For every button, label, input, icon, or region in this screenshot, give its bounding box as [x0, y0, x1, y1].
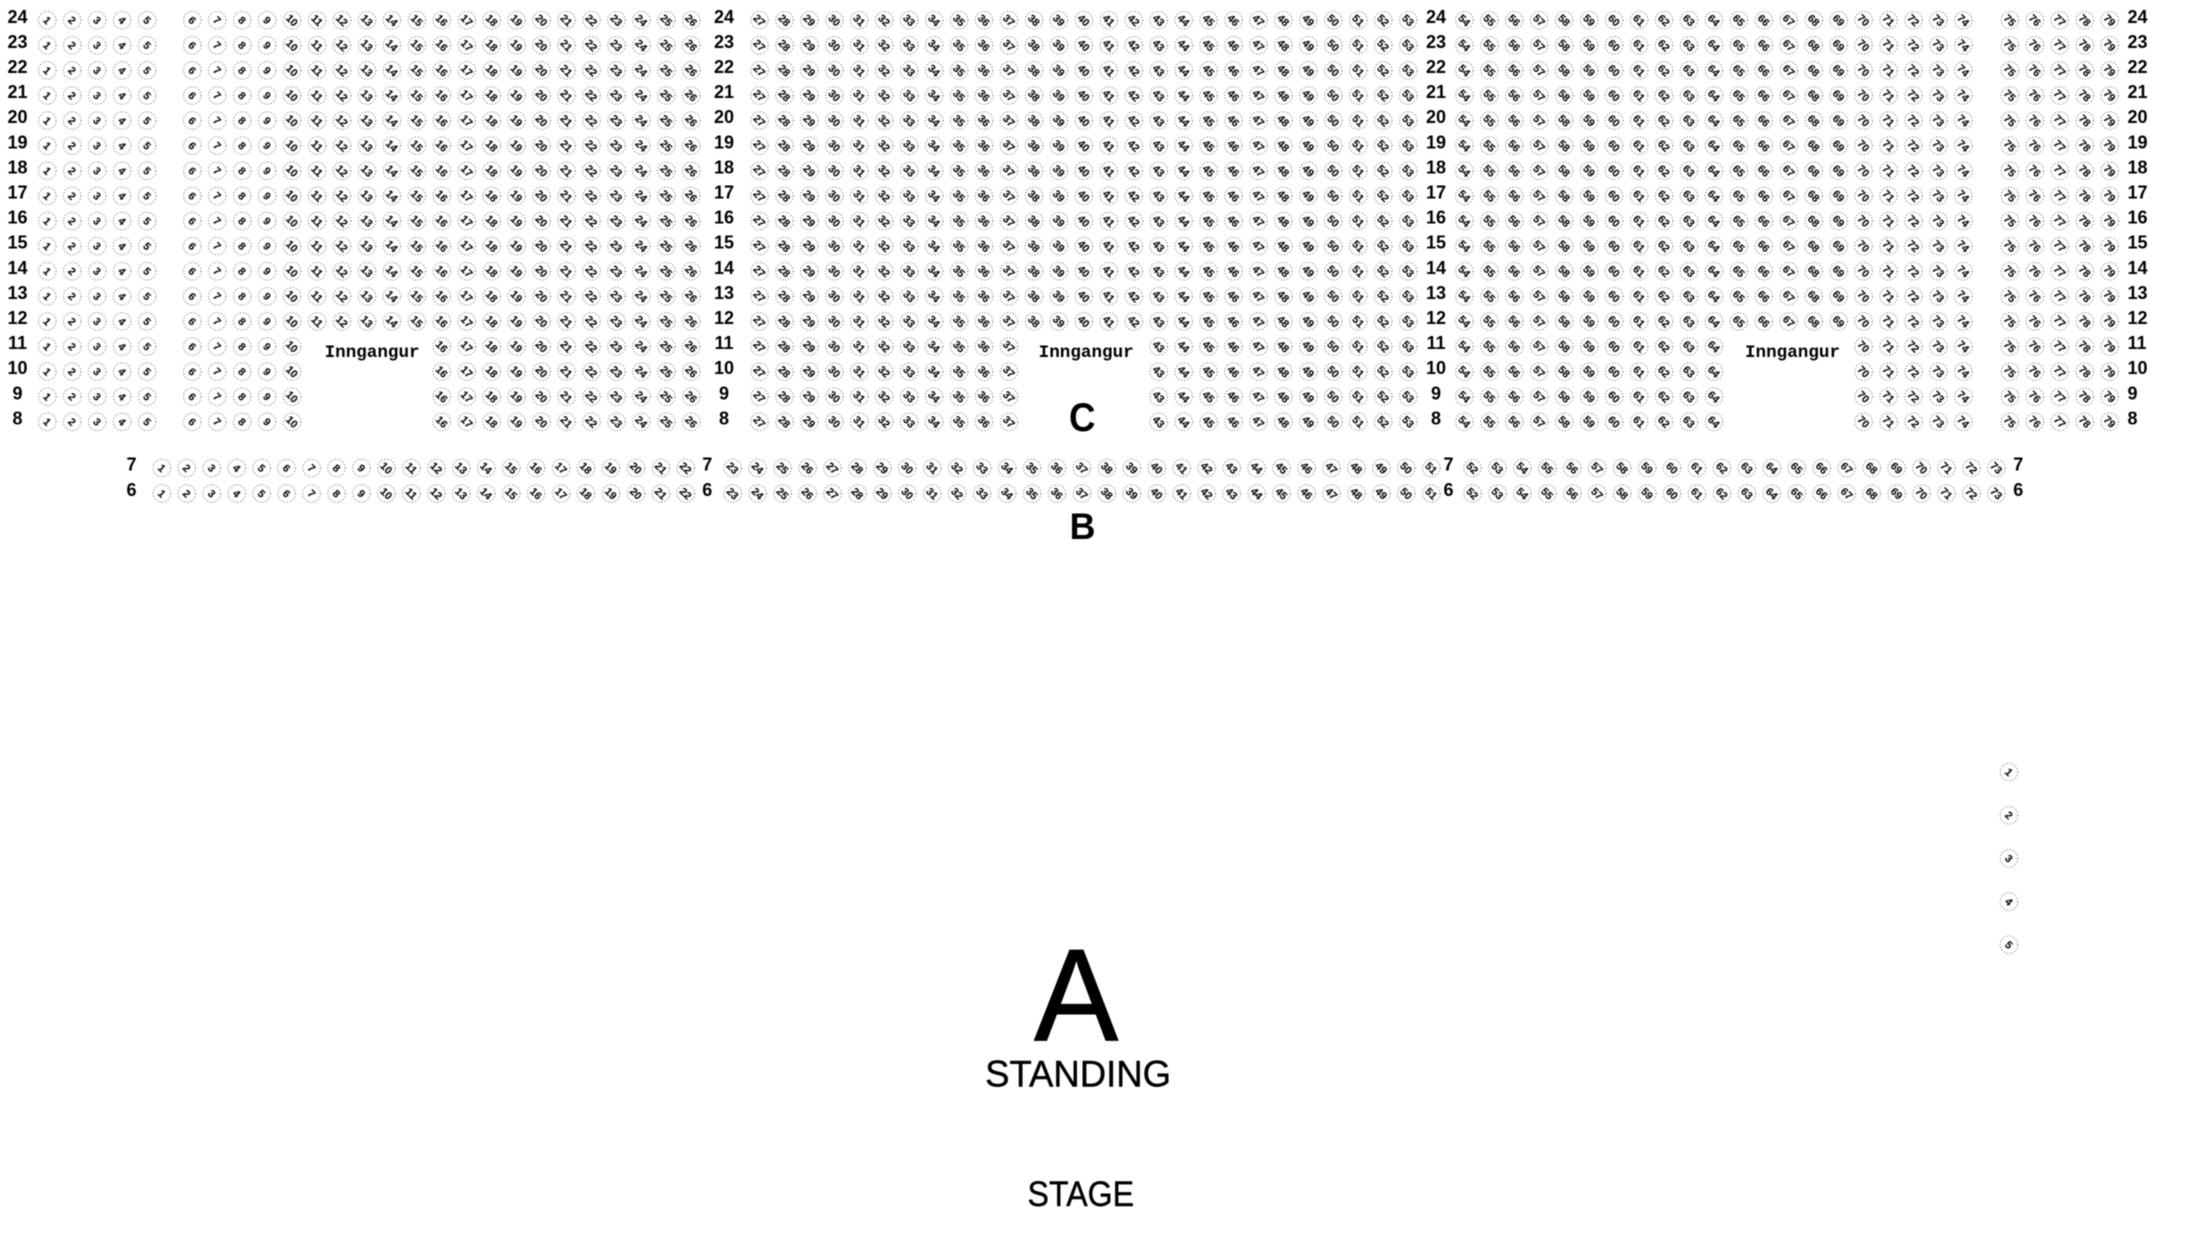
svg-text:23: 23 [714, 32, 734, 52]
svg-text:20: 20 [7, 107, 27, 127]
svg-text:9: 9 [719, 383, 729, 403]
svg-text:19: 19 [714, 132, 734, 152]
svg-text:12: 12 [714, 308, 734, 328]
svg-text:17: 17 [7, 183, 27, 203]
svg-text:21: 21 [1426, 82, 1446, 102]
svg-text:19: 19 [2128, 132, 2148, 152]
svg-text:9: 9 [2128, 383, 2138, 403]
svg-text:15: 15 [714, 233, 734, 253]
svg-text:20: 20 [1426, 107, 1446, 127]
svg-text:17: 17 [1426, 183, 1446, 203]
svg-text:16: 16 [714, 208, 734, 228]
svg-text:8: 8 [12, 408, 22, 428]
svg-text:11: 11 [1426, 333, 1445, 353]
svg-text:19: 19 [1426, 132, 1446, 152]
svg-text:24: 24 [2128, 7, 2148, 27]
svg-text:Inngangur: Inngangur [325, 343, 420, 363]
svg-text:22: 22 [714, 57, 734, 77]
svg-text:11: 11 [8, 333, 27, 353]
svg-text:6: 6 [126, 480, 136, 500]
svg-text:9: 9 [1431, 383, 1441, 403]
svg-text:8: 8 [1431, 408, 1441, 428]
svg-text:10: 10 [2128, 358, 2148, 378]
svg-text:12: 12 [1426, 308, 1446, 328]
svg-text:7: 7 [2013, 455, 2023, 475]
svg-text:24: 24 [7, 7, 27, 27]
svg-text:17: 17 [2128, 183, 2148, 203]
svg-text:11: 11 [2128, 333, 2147, 353]
svg-text:STAGE: STAGE [1028, 1175, 1135, 1214]
svg-text:10: 10 [714, 358, 734, 378]
svg-text:18: 18 [714, 157, 734, 177]
svg-text:14: 14 [7, 258, 27, 278]
svg-text:7: 7 [126, 455, 136, 475]
svg-text:18: 18 [2128, 157, 2148, 177]
svg-text:22: 22 [2128, 57, 2148, 77]
svg-text:7: 7 [702, 455, 712, 475]
svg-text:14: 14 [714, 258, 734, 278]
svg-text:12: 12 [2128, 308, 2148, 328]
svg-text:14: 14 [1426, 258, 1446, 278]
svg-text:13: 13 [1426, 283, 1446, 303]
svg-text:STANDING: STANDING [985, 1054, 1171, 1095]
svg-text:10: 10 [1426, 358, 1446, 378]
svg-text:Inngangur: Inngangur [1039, 343, 1134, 363]
svg-text:22: 22 [7, 57, 27, 77]
svg-text:9: 9 [12, 383, 22, 403]
svg-text:21: 21 [2128, 82, 2148, 102]
svg-text:20: 20 [2128, 107, 2148, 127]
svg-text:11: 11 [714, 333, 733, 353]
svg-text:21: 21 [7, 82, 27, 102]
svg-text:C: C [1069, 396, 1096, 440]
svg-text:20: 20 [714, 107, 734, 127]
svg-text:B: B [1070, 505, 1096, 547]
svg-text:14: 14 [2128, 258, 2148, 278]
svg-text:24: 24 [714, 7, 734, 27]
svg-text:8: 8 [719, 408, 729, 428]
svg-text:16: 16 [7, 208, 27, 228]
svg-text:21: 21 [714, 82, 734, 102]
svg-text:22: 22 [1426, 57, 1446, 77]
svg-text:13: 13 [7, 283, 27, 303]
svg-text:A: A [1034, 921, 1119, 1068]
svg-text:24: 24 [1426, 7, 1446, 27]
svg-text:6: 6 [1443, 480, 1453, 500]
svg-text:10: 10 [7, 358, 27, 378]
svg-text:23: 23 [2128, 32, 2148, 52]
svg-text:18: 18 [7, 157, 27, 177]
svg-text:19: 19 [7, 132, 27, 152]
svg-text:23: 23 [7, 32, 27, 52]
svg-text:13: 13 [714, 283, 734, 303]
svg-text:18: 18 [1426, 157, 1446, 177]
svg-text:6: 6 [702, 480, 712, 500]
svg-text:15: 15 [1426, 233, 1446, 253]
svg-text:15: 15 [7, 233, 27, 253]
svg-text:17: 17 [714, 183, 734, 203]
svg-text:12: 12 [7, 308, 27, 328]
svg-text:8: 8 [2128, 408, 2138, 428]
svg-text:15: 15 [2128, 233, 2148, 253]
svg-text:7: 7 [1443, 455, 1453, 475]
svg-text:16: 16 [1426, 208, 1446, 228]
svg-text:6: 6 [2013, 480, 2023, 500]
svg-text:23: 23 [1426, 32, 1446, 52]
svg-text:16: 16 [2128, 208, 2148, 228]
svg-text:13: 13 [2128, 283, 2148, 303]
svg-text:Inngangur: Inngangur [1745, 343, 1840, 363]
